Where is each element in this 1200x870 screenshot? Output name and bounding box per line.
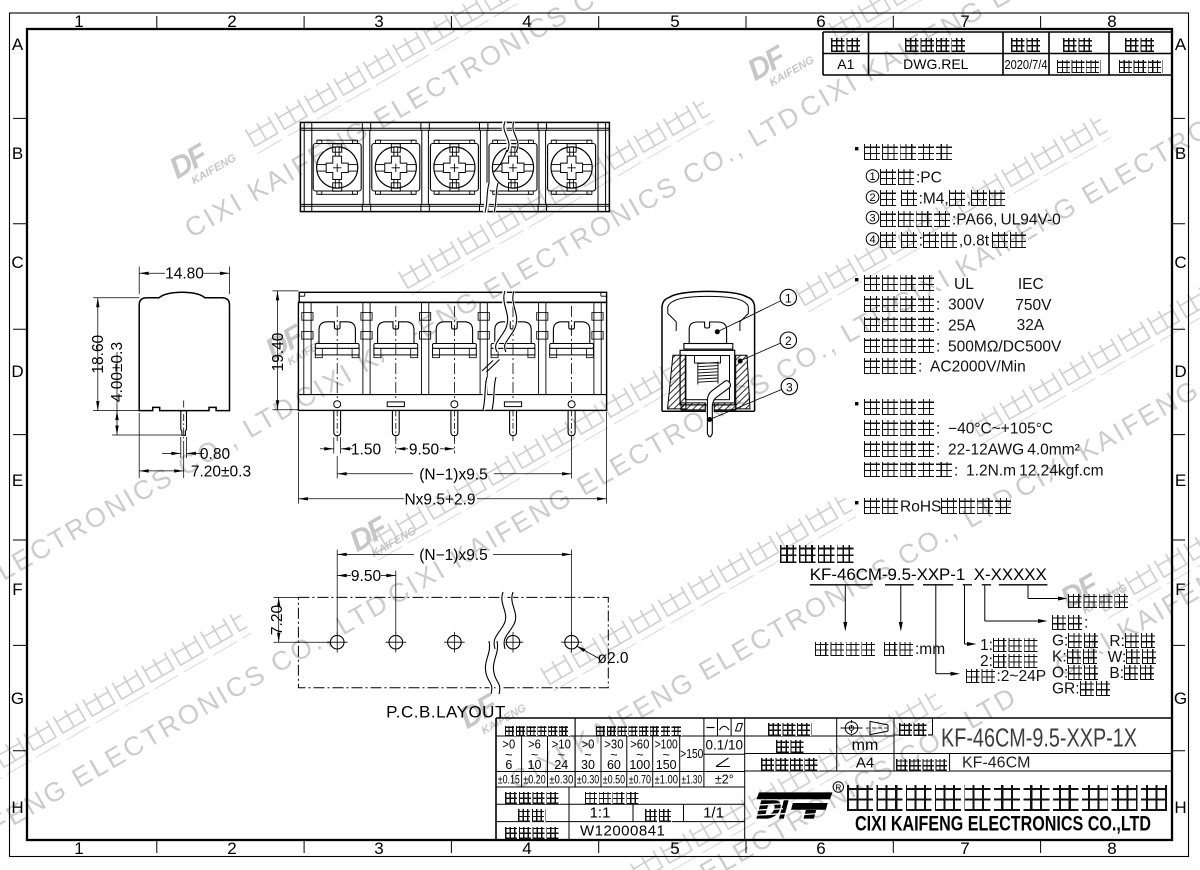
svg-text:60: 60 <box>607 758 621 772</box>
svg-text:A: A <box>12 35 24 54</box>
svg-text:3: 3 <box>869 212 875 224</box>
svg-text:4.00±0.3: 4.00±0.3 <box>109 342 126 402</box>
svg-text:±0.50: ±0.50 <box>603 772 625 786</box>
svg-text:24: 24 <box>554 758 568 772</box>
svg-text:D: D <box>11 362 23 381</box>
svg-text:2020/7/4: 2020/7/4 <box>1005 57 1048 72</box>
svg-text:B: B <box>12 144 23 163</box>
svg-text:±0.20: ±0.20 <box>523 772 546 786</box>
svg-text:10: 10 <box>528 758 542 772</box>
svg-text:19.40: 19.40 <box>270 332 287 371</box>
svg-text:6: 6 <box>816 839 825 858</box>
svg-text:100: 100 <box>629 758 650 772</box>
svg-text:B: B <box>1175 144 1186 163</box>
svg-text:A: A <box>1175 35 1187 54</box>
svg-text:1: 1 <box>785 291 792 305</box>
svg-text:6: 6 <box>505 758 512 772</box>
svg-text:(N−1)x9.5: (N−1)x9.5 <box>419 547 488 564</box>
svg-text:>150: >150 <box>680 747 703 761</box>
svg-text:±1.30: ±1.30 <box>681 772 702 786</box>
svg-text:F: F <box>12 580 22 599</box>
svg-text:(N−1)x9.5: (N−1)x9.5 <box>419 467 488 484</box>
svg-text:2: 2 <box>785 334 792 348</box>
svg-text:A4: A4 <box>856 754 874 771</box>
svg-text:C: C <box>1174 253 1186 272</box>
svg-text:H: H <box>1174 798 1186 817</box>
svg-text:W12000841: W12000841 <box>580 823 665 840</box>
svg-text:7.20±0.3: 7.20±0.3 <box>191 464 251 481</box>
svg-text:14.80: 14.80 <box>165 265 204 282</box>
svg-text:mm: mm <box>852 737 879 754</box>
svg-text:F: F <box>1175 580 1185 599</box>
svg-text:1: 1 <box>869 171 875 183</box>
svg-text:G: G <box>1174 689 1187 708</box>
svg-text:P.C.B.LAYOUT: P.C.B.LAYOUT <box>386 703 506 722</box>
svg-text:D: D <box>1174 362 1186 381</box>
svg-text:H: H <box>11 798 23 817</box>
svg-text:±0.70: ±0.70 <box>629 772 652 786</box>
svg-text:1: 1 <box>74 12 83 31</box>
svg-text:9.50: 9.50 <box>351 568 382 585</box>
svg-text:0.1/10: 0.1/10 <box>706 738 744 753</box>
svg-text:6: 6 <box>816 12 825 31</box>
svg-text:KF-46CM: KF-46CM <box>962 755 1030 772</box>
svg-text:5: 5 <box>670 839 679 858</box>
svg-text:±2°: ±2° <box>715 772 734 786</box>
svg-text:3: 3 <box>786 380 793 394</box>
svg-text:C: C <box>11 253 23 272</box>
svg-text:ø2.0: ø2.0 <box>597 650 628 667</box>
svg-text:1: 1 <box>74 839 83 858</box>
svg-text:18.60: 18.60 <box>90 334 107 373</box>
svg-text:A1: A1 <box>837 56 854 72</box>
svg-text:2: 2 <box>227 839 236 858</box>
svg-text:E: E <box>12 471 23 490</box>
svg-text:8: 8 <box>1107 839 1116 858</box>
svg-text:CIXI KAIFENG ELECTRONICS CO.,L: CIXI KAIFENG ELECTRONICS CO.,LTD <box>855 812 1151 836</box>
svg-text:E: E <box>1175 471 1186 490</box>
svg-text:7.20: 7.20 <box>269 605 286 636</box>
svg-text:150: 150 <box>656 758 677 772</box>
svg-text:±0.30: ±0.30 <box>549 772 573 786</box>
svg-text:30: 30 <box>581 758 595 772</box>
svg-text:R: R <box>835 783 841 793</box>
svg-text:4: 4 <box>869 234 875 246</box>
svg-text:DWG.REL: DWG.REL <box>903 56 969 72</box>
svg-text:0.80: 0.80 <box>200 446 231 463</box>
svg-text:KF-46CM-9.5-XXP-1X: KF-46CM-9.5-XXP-1X <box>941 723 1137 753</box>
svg-text:1.50: 1.50 <box>351 442 382 459</box>
svg-text:3: 3 <box>374 839 383 858</box>
svg-text:7: 7 <box>960 839 969 858</box>
svg-text:5: 5 <box>670 12 679 31</box>
svg-text:7: 7 <box>960 12 969 31</box>
svg-text:G: G <box>11 689 24 708</box>
svg-text:±1.00: ±1.00 <box>654 772 678 786</box>
svg-text:KF-46CM-9.5-XXP-1 X-XXXXX: KF-46CM-9.5-XXP-1 X-XXXXX <box>810 566 1047 584</box>
svg-text:±0.15: ±0.15 <box>498 772 520 786</box>
svg-text:2: 2 <box>869 192 875 204</box>
svg-text:2: 2 <box>227 12 236 31</box>
svg-text:3: 3 <box>374 12 383 31</box>
svg-text:4: 4 <box>522 12 531 31</box>
svg-text:8: 8 <box>1107 12 1116 31</box>
svg-text:Nx9.5+2.9: Nx9.5+2.9 <box>404 492 475 509</box>
svg-text:9.50: 9.50 <box>409 442 440 459</box>
svg-text:±0.30: ±0.30 <box>577 772 600 786</box>
svg-text:1/1: 1/1 <box>703 804 724 821</box>
